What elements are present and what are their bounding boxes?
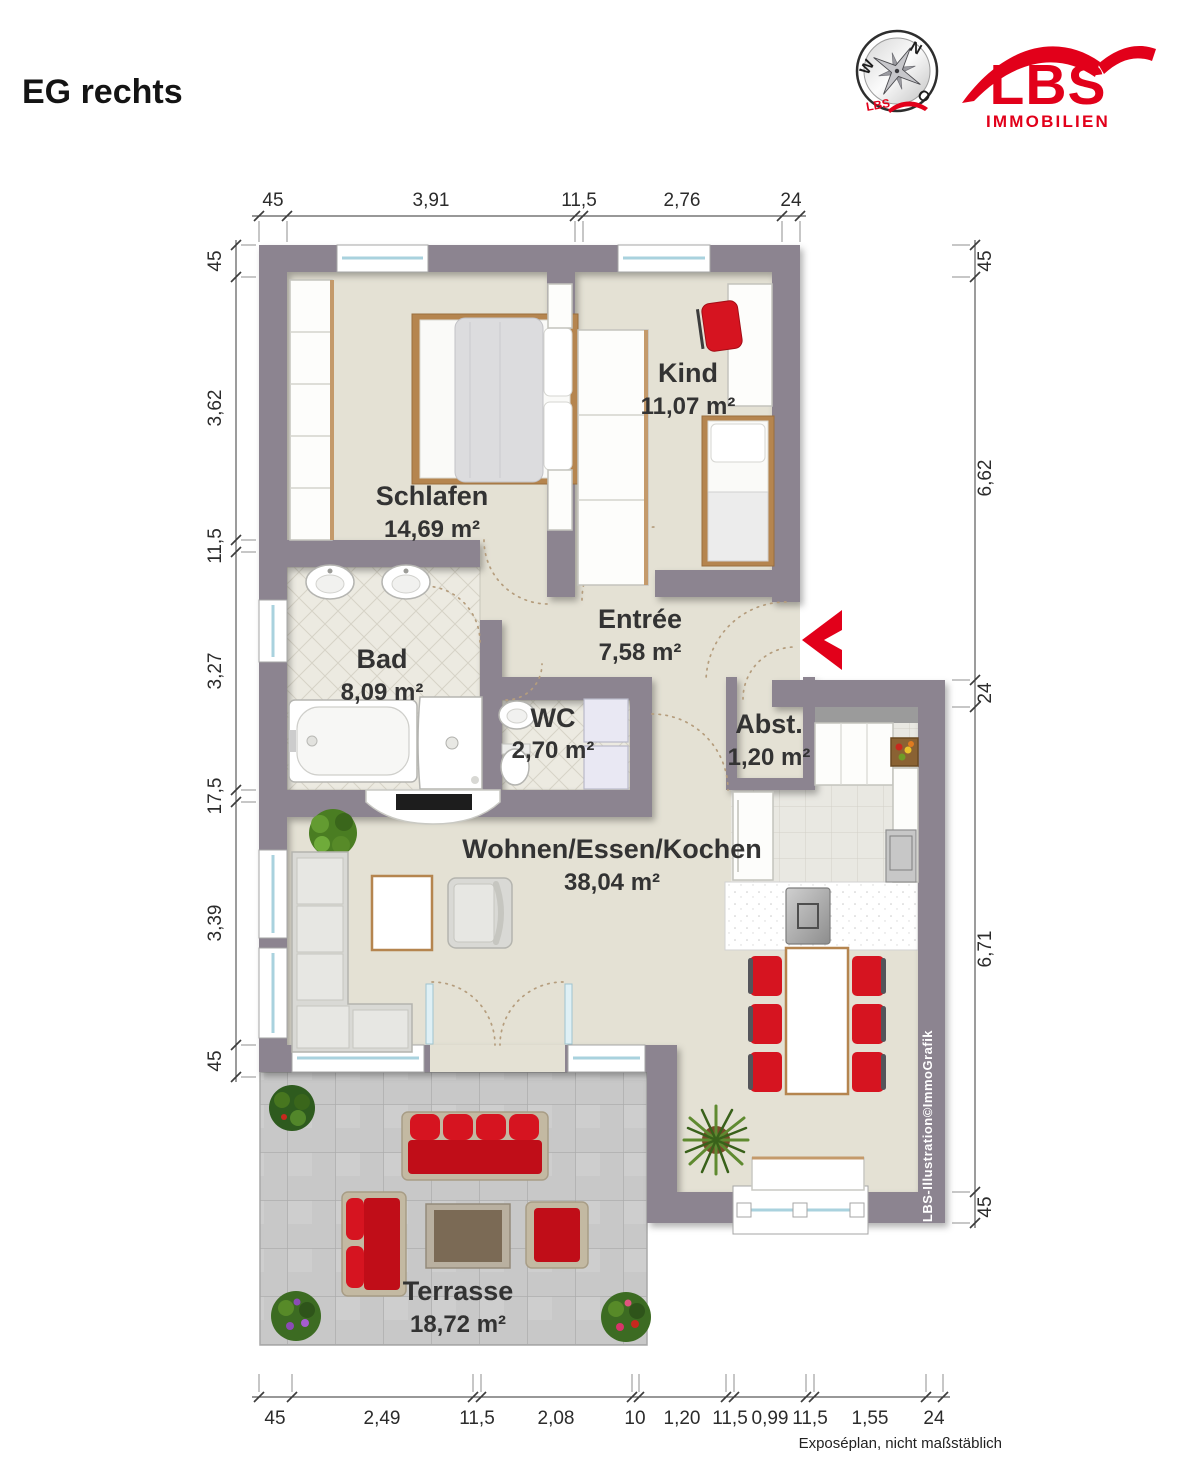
dim-label: 2,08 <box>538 1408 575 1429</box>
dining-table <box>786 948 848 1094</box>
lbs-subtitle-text: IMMOBILIEN <box>986 112 1110 131</box>
dim-right: 45 6,62 24 6,71 45 <box>952 240 996 1228</box>
dim-label: 24 <box>780 190 802 211</box>
dim-label: 2,49 <box>364 1408 401 1429</box>
nightstand <box>548 470 572 530</box>
dim-label: 45 <box>262 190 283 211</box>
oven <box>886 830 916 882</box>
room-area-wc: 2,70 m² <box>512 737 595 764</box>
room-label-wc: WC <box>531 703 576 733</box>
plant <box>271 1291 321 1341</box>
room-label-schlafen: Schlafen <box>376 481 489 511</box>
plant <box>309 809 357 857</box>
nightstand <box>548 284 572 328</box>
terrace-armchair <box>526 1202 588 1268</box>
kitchen-backsplash <box>815 707 918 723</box>
kitchen-cabinets <box>815 723 893 785</box>
dim-label: 17,5 <box>205 778 226 815</box>
dim-label: 45 <box>975 1196 996 1217</box>
window-wohnen-left-1 <box>259 850 287 938</box>
compass-icon: N W O LBS <box>857 31 937 114</box>
terrasse-door-opening <box>430 1045 565 1072</box>
window-kind <box>618 245 710 272</box>
dim-label: 24 <box>975 682 996 704</box>
dining-chair <box>748 1004 782 1044</box>
dim-label: 1,20 <box>664 1408 701 1429</box>
double-bed <box>412 314 578 484</box>
dim-label: 11,5 <box>792 1408 828 1429</box>
lbs-brand-text: LBS <box>990 53 1107 117</box>
dining-chair <box>748 1052 782 1092</box>
room-area-wohnen: 38,04 m² <box>564 869 660 896</box>
terrace-sofa-small <box>342 1192 406 1296</box>
lbs-swoosh-tail <box>1098 46 1156 74</box>
plant <box>601 1292 651 1342</box>
sink <box>382 565 430 599</box>
washing-machine <box>584 699 628 742</box>
fruit-bowl <box>891 738 918 766</box>
window-schlafen <box>337 245 428 272</box>
dining-chair <box>852 1004 886 1044</box>
sideboard <box>752 1158 864 1190</box>
dim-label: 45 <box>205 250 226 271</box>
window-wohnen-left-2 <box>259 948 287 1038</box>
dim-bottom: 45 2,49 11,5 2,08 10 1,20 11,5 0,99 11,5… <box>252 1374 950 1429</box>
wardrobe <box>290 280 332 540</box>
dim-label: 0,99 <box>752 1408 789 1429</box>
dining-set <box>748 948 886 1094</box>
page-title: EG rechts <box>22 73 183 111</box>
credit-text: LBS-Illustration©ImmoGrafik <box>920 1030 935 1222</box>
dim-label: 1,55 <box>852 1408 889 1429</box>
dim-label: 11,5 <box>561 190 597 211</box>
dim-label: 3,27 <box>205 653 226 690</box>
window-terrasse-2 <box>568 1045 645 1072</box>
floorplan-page: EG rechts N W O LBS LBS IMMOBILIEN <box>0 0 1200 1472</box>
shower <box>418 697 482 789</box>
room-area-bad: 8,09 m² <box>341 679 424 706</box>
dim-label: 3,91 <box>413 190 450 211</box>
kind-bed <box>702 416 774 566</box>
dim-left: 45 3,62 11,5 3,27 17,5 3,39 45 <box>205 240 256 1082</box>
compass-brand-text: LBS <box>865 96 891 114</box>
terrace-sofa-large <box>402 1112 548 1180</box>
terrace-table <box>426 1204 510 1268</box>
dim-label: 11,5 <box>205 528 226 564</box>
dim-label: 3,39 <box>205 905 226 942</box>
room-label-kind: Kind <box>658 358 718 388</box>
dim-label: 2,76 <box>664 190 701 211</box>
wardrobe <box>578 330 648 585</box>
dining-chair <box>748 956 782 996</box>
dim-label: 6,71 <box>975 931 996 968</box>
lbs-logo: LBS IMMOBILIEN <box>962 46 1156 131</box>
room-area-entree: 7,58 m² <box>599 639 682 666</box>
dining-chair <box>852 1052 886 1092</box>
cooktop <box>786 888 830 944</box>
dim-label: 6,62 <box>975 460 996 497</box>
window-bottom <box>733 1186 868 1234</box>
floorplan-canvas: EG rechts N W O LBS LBS IMMOBILIEN <box>0 0 1200 1472</box>
room-area-terrasse: 18,72 m² <box>410 1311 506 1338</box>
desk-chair <box>697 300 743 353</box>
dining-chair <box>852 956 886 996</box>
dim-label: 3,62 <box>205 390 226 427</box>
plant <box>269 1085 315 1131</box>
sink <box>306 565 354 599</box>
dim-label: 11,5 <box>712 1408 748 1429</box>
room-label-abst: Abst. <box>735 709 803 739</box>
armchair <box>448 878 512 948</box>
terrasse-door-leaf-left <box>426 984 433 1044</box>
room-label-terrasse: Terrasse <box>403 1276 514 1306</box>
window-bad <box>259 600 287 662</box>
dim-top: 45 3,91 11,5 2,76 24 <box>252 190 806 242</box>
dim-label: 45 <box>975 250 996 271</box>
room-area-abst: 1,20 m² <box>728 744 811 771</box>
dim-label: 45 <box>205 1050 226 1071</box>
room-area-kind: 11,07 m² <box>641 393 736 420</box>
room-area-schlafen: 14,69 m² <box>384 516 480 543</box>
dim-label: 10 <box>624 1408 645 1429</box>
bathtub <box>289 700 417 782</box>
entrance-arrow-icon <box>802 610 842 670</box>
room-label-entree: Entrée <box>598 604 682 634</box>
room-label-wohnen: Wohnen/Essen/Kochen <box>462 834 762 864</box>
dim-label: 24 <box>923 1408 945 1429</box>
dim-label: 11,5 <box>459 1408 495 1429</box>
coffee-table <box>372 876 432 950</box>
dim-label: 45 <box>264 1408 285 1429</box>
terrasse-door-leaf-right <box>565 984 572 1044</box>
disclaimer-text: Exposéplan, nicht maßstäblich <box>799 1435 1002 1452</box>
room-label-bad: Bad <box>356 644 407 674</box>
